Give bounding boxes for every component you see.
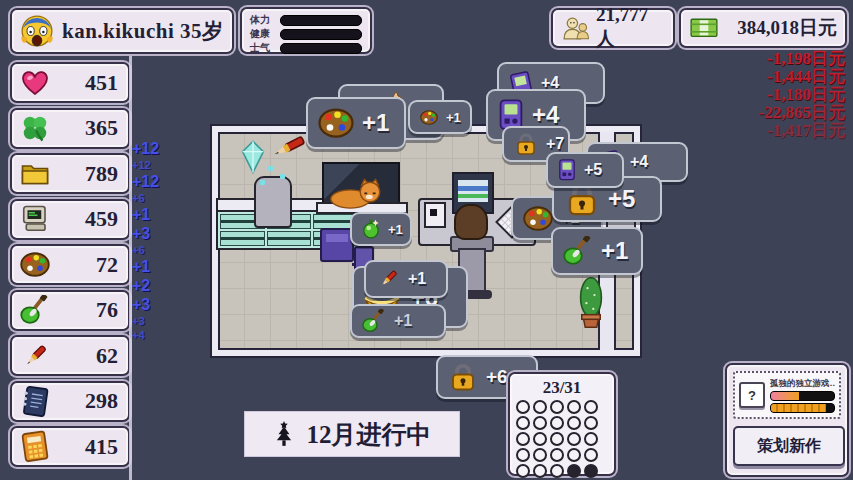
money-amount: 384,018日元: [737, 15, 837, 41]
popup-palette: +1: [306, 97, 406, 149]
water-drop: [260, 180, 265, 185]
calendar-day-dot: [516, 400, 530, 414]
calendar-day-dot: [550, 416, 564, 430]
expense-log: -1,198日元 -1,444日元 -1,180日元 -22,865日元 -1,…: [759, 50, 845, 140]
expense-entry: -1,417日元: [759, 122, 845, 140]
resource-clovers: 365: [10, 108, 130, 149]
gain-entry: +1: [132, 259, 178, 274]
palette-icon: [523, 206, 553, 231]
calendar-day-dot: [567, 448, 581, 462]
resources-sidebar: 451 365 789 459 72 76 62 298: [10, 62, 130, 467]
gameboy-icon: [558, 159, 576, 181]
stat-health: 健康: [250, 27, 362, 41]
resource-art: 72: [10, 244, 130, 285]
project-progress-bar-2: [771, 404, 826, 412]
calendar-day-dot: [550, 400, 564, 414]
month-banner: 12月进行中: [245, 412, 459, 456]
calendar-progress-label: 23/31: [514, 377, 610, 399]
heart-icon: [20, 69, 50, 97]
lock-icon: [448, 362, 478, 392]
water-drop: [280, 174, 285, 179]
calendar-day-dot: [516, 432, 530, 446]
project-panel: ? 孤独的独立游戏… 策划新作: [725, 363, 849, 477]
fans-panel: 21,777人: [551, 8, 675, 48]
popup-flask: +1: [350, 212, 412, 246]
stat-stamina: 体力: [250, 13, 362, 27]
flask-icon: [362, 218, 380, 240]
question-key-icon: ?: [739, 382, 765, 408]
guitar-icon: [362, 309, 386, 333]
desk-printer: [424, 202, 446, 228]
calendar-dots: [514, 399, 610, 480]
gain-entry: +2: [132, 278, 178, 293]
calendar-day-dot: [516, 448, 530, 462]
resource-calculators: 415: [10, 426, 130, 467]
calendar-day-dot: [584, 416, 598, 430]
project-progress-bar-1: [771, 392, 799, 400]
calendar-day-dot: [516, 416, 530, 430]
resource-writing: 62: [10, 335, 130, 376]
resource-folders: 789: [10, 153, 130, 194]
gain-entry: +3: [132, 316, 178, 327]
calendar-day-dot: [550, 432, 564, 446]
gain-entry: +3: [132, 297, 178, 312]
fans-count: 21,777人: [596, 4, 665, 52]
calendar-day-dot: [550, 464, 564, 478]
calendar-day-dot: [584, 432, 598, 446]
popup-palette: +1: [408, 100, 472, 134]
resource-notebooks: 298: [10, 381, 130, 422]
lock-icon: [514, 132, 538, 156]
calendar-day-dot: [533, 464, 547, 478]
gain-entry: +4: [132, 330, 178, 341]
folder-icon: [20, 160, 50, 188]
popup-pen: +1: [364, 260, 448, 298]
calendar-day-dot: [533, 448, 547, 462]
calendar-day-dot: [584, 448, 598, 462]
calendar-day-dot: [584, 400, 598, 414]
popup-guitar: +1: [551, 227, 643, 275]
gain-entry: +6: [132, 245, 178, 256]
game-console: [320, 228, 354, 262]
popup-guitar: +1: [350, 304, 446, 338]
game-screen: kan.kikuchi 35岁 体力 健康 士气 21,777人 384,018…: [0, 0, 853, 480]
calendar-day-dot: [567, 432, 581, 446]
gain-entry: +12: [132, 174, 178, 189]
fans-icon: [561, 14, 590, 42]
stat-morale: 士气: [250, 41, 362, 55]
resource-music: 76: [10, 290, 130, 331]
notebook-icon: [20, 387, 50, 415]
calendar-day-dot: [567, 416, 581, 430]
gain-entry: +1: [132, 207, 178, 222]
palette-icon: [318, 108, 354, 138]
calculator-icon: [20, 433, 50, 461]
player-character: [454, 204, 488, 240]
palette-icon: [20, 251, 50, 279]
palette-icon: [420, 110, 438, 125]
expense-entry: -22,865日元: [759, 104, 845, 122]
player-panel: kan.kikuchi 35岁: [10, 8, 234, 54]
resource-hearts: 451: [10, 62, 130, 103]
plan-new-game-button[interactable]: 策划新作: [733, 426, 845, 466]
calendar-day-dot: [533, 416, 547, 430]
christmas-tree-icon: [273, 420, 295, 449]
player-name: kan.kikuchi 35岁: [62, 17, 224, 45]
calendar-day-dot: [533, 432, 547, 446]
gain-entry: +6: [132, 193, 178, 204]
month-banner-text: 12月进行中: [307, 418, 432, 451]
gain-ticker: +12 +12 +12 +6 +1 +3 +6 +1 +2 +3 +3 +4: [132, 141, 178, 344]
scream-face-icon: [20, 17, 54, 45]
calendar-day-dot: [550, 448, 564, 462]
expense-entry: -1,180日元: [759, 86, 845, 104]
stats-panel: 体力 健康 士气: [240, 7, 372, 54]
guitar-icon: [20, 296, 50, 324]
month-calendar: 23/31: [508, 372, 616, 476]
project-title: 孤独的独立游戏…: [770, 378, 835, 389]
calendar-day-dot: [584, 464, 598, 478]
pen-icon: [20, 342, 50, 370]
resource-computers: 459: [10, 199, 130, 240]
gain-entry: +12: [132, 141, 178, 156]
current-project-box: ? 孤独的独立游戏…: [733, 371, 841, 419]
pen-icon: [376, 267, 400, 291]
calendar-day-dot: [516, 464, 530, 478]
clover-icon: [20, 114, 50, 142]
money-icon: [689, 14, 719, 42]
calendar-day-dot: [533, 400, 547, 414]
calendar-day-dot: [567, 400, 581, 414]
popup-gameboy: +5: [546, 152, 624, 188]
guitar-icon: [563, 236, 593, 266]
expense-entry: -1,444日元: [759, 68, 845, 86]
expense-entry: -1,198日元: [759, 50, 845, 68]
gain-entry: +12: [132, 160, 178, 171]
computer-icon: [20, 205, 50, 233]
water-drop: [268, 166, 273, 171]
calendar-day-dot: [567, 464, 581, 478]
gain-entry: +3: [132, 226, 178, 241]
money-panel: 384,018日元: [679, 8, 847, 48]
